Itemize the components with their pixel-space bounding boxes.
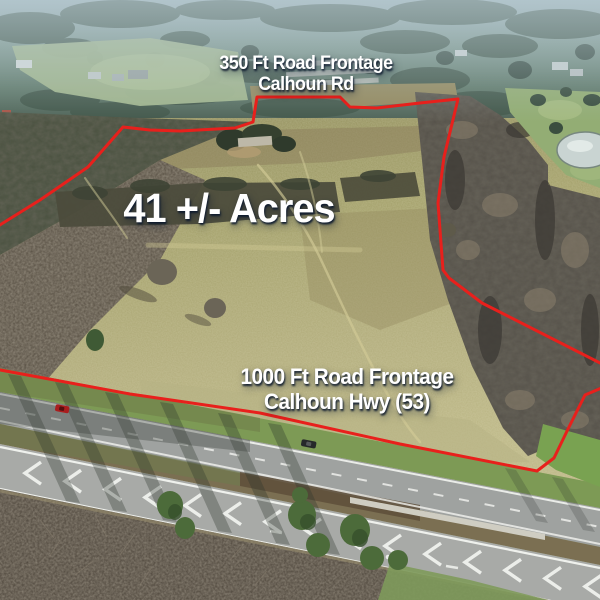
top-frontage-line2: Calhoun Rd [219,74,392,95]
top-frontage-line1: 350 Ft Road Frontage [219,53,392,74]
top-frontage-label: 350 Ft Road Frontage Calhoun Rd [219,53,392,96]
aerial-listing-photo: 350 Ft Road Frontage Calhoun Rd 41 +/- A… [0,0,600,600]
acreage-label: 41 +/- Acres [123,186,334,232]
bottom-frontage-line1: 1000 Ft Road Frontage [240,365,453,390]
cedar-tree [86,329,104,351]
bottom-frontage-line2: Calhoun Hwy (53) [240,390,453,415]
bottom-frontage-label: 1000 Ft Road Frontage Calhoun Hwy (53) [240,365,453,414]
dirt-patch [227,146,261,158]
